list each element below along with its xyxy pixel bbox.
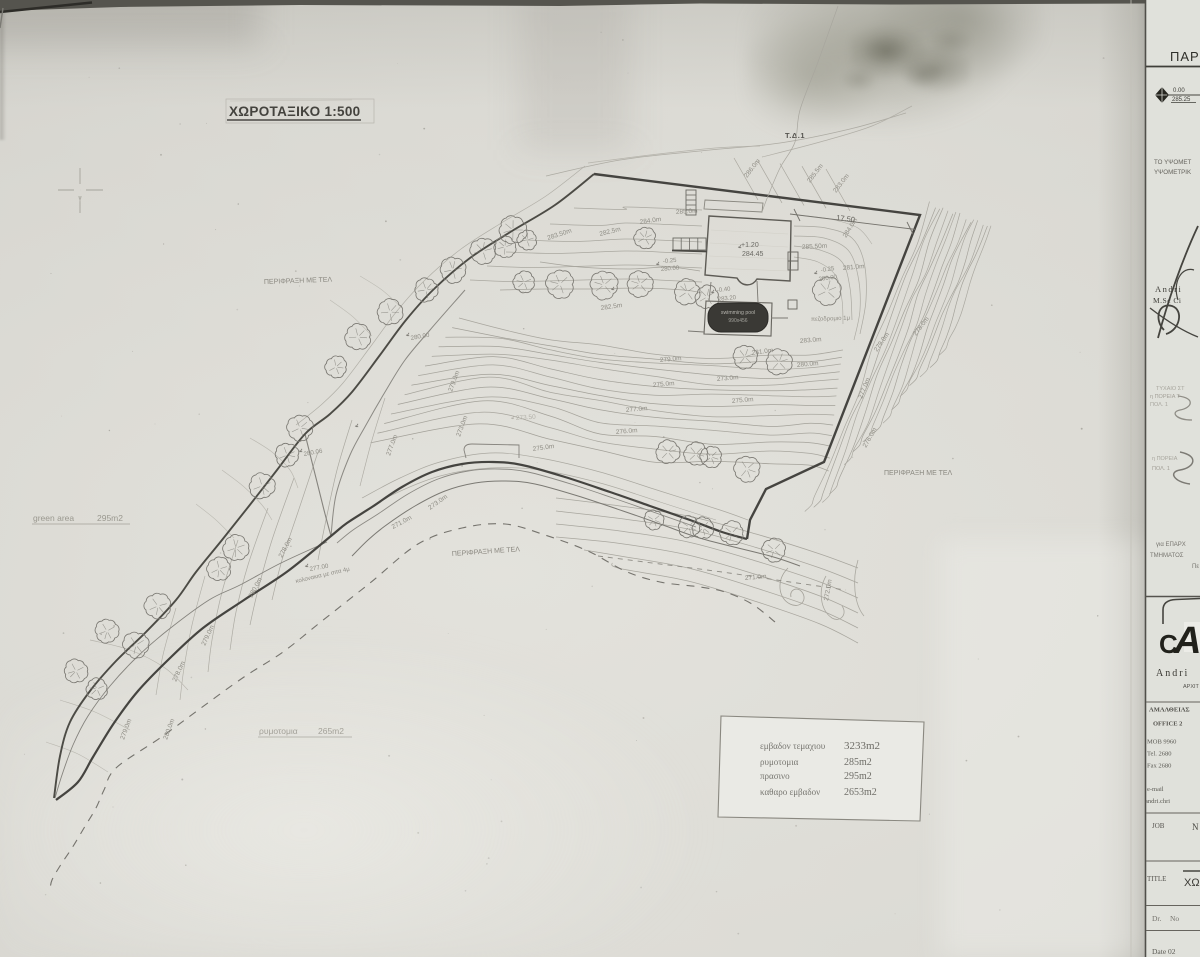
svg-text:ΧΩ: ΧΩ (1184, 877, 1200, 889)
svg-text:andri.chri: andri.chri (1145, 798, 1170, 805)
svg-text:ΤΜΗΜΑΤΟΣ: ΤΜΗΜΑΤΟΣ (1150, 553, 1184, 559)
svg-text:280.00: 280.00 (818, 274, 838, 283)
svg-text:ΠΟΛ. 1: ΠΟΛ. 1 (1152, 466, 1170, 472)
svg-text:ΠΕΡΙΦΡΑΞΗ ΜΕ ΤΕΛ: ΠΕΡΙΦΡΑΞΗ ΜΕ ΤΕΛ (264, 277, 333, 286)
svg-text:3233m2: 3233m2 (844, 740, 880, 752)
svg-text:C: C (1159, 629, 1178, 659)
svg-text:279.0m: 279.0m (660, 355, 682, 364)
svg-text:ΠΟΛ. 1: ΠΟΛ. 1 (1150, 402, 1168, 408)
svg-text:OFFICE 2: OFFICE 2 (1153, 721, 1182, 728)
svg-text:ΤΟ ΥΨΟΜΕΤ: ΤΟ ΥΨΟΜΕΤ (1154, 159, 1191, 166)
svg-text:ΤΥΧΑΙΟ ΣΤ: ΤΥΧΑΙΟ ΣΤ (1156, 386, 1185, 392)
svg-text:ΠΕΡΙΦΡΑΞΗ ΜΕ ΤΕΛ: ΠΕΡΙΦΡΑΞΗ ΜΕ ΤΕΛ (884, 470, 953, 477)
svg-text:καθαρο εμβαδον: καθαρο εμβαδον (760, 787, 820, 797)
svg-text:273.0m: 273.0m (717, 374, 739, 383)
svg-text:ΠΕΡΙΦΡΑΞΗ ΜΕ ΤΕΛ: ΠΕΡΙΦΡΑΞΗ ΜΕ ΤΕΛ (452, 546, 521, 558)
svg-text:+1.20: +1.20 (741, 242, 759, 249)
svg-text:Date 02: Date 02 (1152, 947, 1176, 956)
svg-text:278.0m: 278.0m (278, 537, 294, 559)
svg-text:283.0m: 283.0m (832, 173, 851, 194)
svg-text:N: N (1192, 822, 1199, 832)
svg-text:278.0m: 278.0m (171, 660, 187, 683)
svg-text:272.0m: 272.0m (823, 579, 834, 602)
svg-text:277.0m: 277.0m (857, 377, 872, 400)
svg-text:η ΠΟΡΕΙΑ: η ΠΟΡΕΙΑ (1152, 456, 1178, 462)
svg-text:295m2: 295m2 (97, 513, 123, 523)
svg-text:280.0m: 280.0m (162, 718, 176, 741)
svg-text:285.5m: 285.5m (806, 163, 825, 184)
svg-text:275.0m: 275.0m (532, 443, 554, 453)
svg-text:ΧΩΡΟΤΑΞΙΚΟ 1:500: ΧΩΡΟΤΑΞΙΚΟ 1:500 (229, 104, 360, 119)
svg-text:276.0m: 276.0m (616, 427, 638, 436)
svg-text:283.0m: 283.0m (800, 336, 822, 345)
svg-text:πεζοδρομιο 1μ: πεζοδρομιο 1μ (811, 316, 851, 323)
svg-text:No: No (1170, 914, 1179, 923)
svg-text:265m2: 265m2 (318, 726, 344, 736)
svg-text:277.0m: 277.0m (385, 434, 399, 457)
svg-text:Andri: Andri (1155, 284, 1182, 294)
svg-text:Fax 2680: Fax 2680 (1147, 763, 1171, 770)
svg-text:ΥΨΟΜΕΤΡΙΚ: ΥΨΟΜΕΤΡΙΚ (1154, 169, 1192, 176)
svg-text:πρασινο: πρασινο (760, 771, 790, 781)
svg-text:276.0m: 276.0m (862, 427, 879, 449)
svg-text:-0.25: -0.25 (663, 258, 678, 265)
svg-text:-0.40: -0.40 (717, 287, 732, 294)
svg-text:285m2: 285m2 (844, 757, 872, 768)
svg-text:για ΕΠΑΡΧ: για ΕΠΑΡΧ (1156, 542, 1186, 548)
svg-text:281.0m: 281.0m (751, 347, 773, 357)
svg-text:Tel. 2680: Tel. 2680 (1147, 751, 1171, 758)
svg-text:284.45: 284.45 (742, 251, 764, 258)
svg-text:swimming pool: swimming pool (721, 310, 755, 316)
svg-text:η ΠΟΡΕΙΑ Τ: η ΠΟΡΕΙΑ Τ (1150, 394, 1180, 400)
svg-text:286.0m: 286.0m (743, 158, 762, 179)
svg-text:Τ.Δ.1: Τ.Δ.1 (785, 131, 805, 140)
svg-text:273.50: 273.50 (516, 414, 537, 422)
svg-text:283.50m: 283.50m (546, 227, 572, 241)
svg-text:2653m2: 2653m2 (844, 787, 877, 798)
svg-text:990x456: 990x456 (728, 318, 747, 324)
svg-text:ΑΜΑΛΘΕΙΑΣ: ΑΜΑΛΘΕΙΑΣ (1149, 707, 1190, 714)
svg-text:280.06: 280.06 (303, 448, 323, 458)
svg-text:282.5m: 282.5m (600, 302, 622, 312)
svg-text:MOB 9960: MOB 9960 (1147, 739, 1176, 746)
svg-text:271.0m: 271.0m (745, 573, 767, 582)
svg-text:TITLE: TITLE (1147, 875, 1166, 883)
svg-text:271.0m: 271.0m (391, 514, 413, 530)
svg-text:ρυμοτομια: ρυμοτομια (760, 757, 799, 767)
svg-text:Πε: Πε (1192, 564, 1199, 570)
svg-text:Andri: Andri (1156, 668, 1189, 679)
svg-text:e-mail: e-mail (1147, 786, 1164, 793)
svg-text:ρυμοτομια: ρυμοτομια (259, 726, 298, 736)
svg-text:282.5m: 282.5m (599, 226, 622, 238)
svg-text:277.0m: 277.0m (626, 405, 648, 414)
svg-text:ΠΑΡ: ΠΑΡ (1170, 49, 1200, 64)
svg-text:285.50m: 285.50m (802, 243, 828, 251)
svg-text:279.0m: 279.0m (119, 718, 133, 741)
svg-text:M.Sc Ci: M.Sc Ci (1153, 296, 1182, 305)
svg-text:JOB: JOB (1152, 822, 1165, 830)
svg-text:275.0m: 275.0m (732, 396, 754, 405)
svg-text:ΑΡΧΙΤ: ΑΡΧΙΤ (1183, 684, 1200, 690)
svg-text:295m2: 295m2 (844, 771, 872, 782)
svg-text:280.00: 280.00 (661, 265, 680, 273)
svg-text:0.00: 0.00 (1173, 88, 1185, 94)
svg-text:284.0m: 284.0m (639, 216, 661, 226)
svg-text:green area: green area (33, 513, 74, 523)
svg-text:273.0m: 273.0m (427, 493, 449, 511)
svg-text:Dr.: Dr. (1152, 914, 1162, 923)
svg-text:εμβαδον τεμαχιου: εμβαδον τεμαχιου (760, 741, 826, 751)
svg-text:281.0m: 281.0m (843, 263, 865, 272)
